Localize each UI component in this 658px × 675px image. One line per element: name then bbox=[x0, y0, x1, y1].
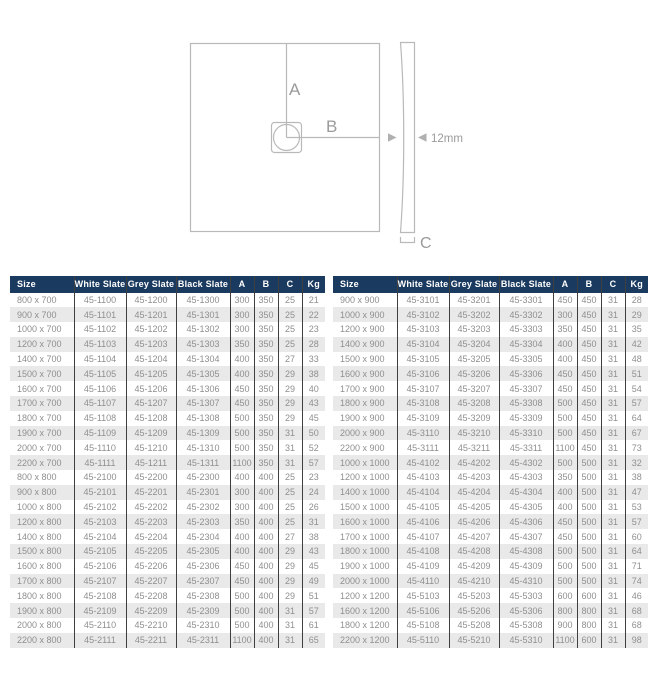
table-row: 1700 x 80045-210745-220745-2307450400294… bbox=[10, 574, 325, 589]
dim-c-cell: 25 bbox=[278, 485, 302, 500]
black-slate-code: 45-2309 bbox=[176, 603, 230, 618]
white-slate-code: 45-2100 bbox=[74, 470, 126, 485]
size-cell: 1600 x 700 bbox=[10, 381, 74, 396]
black-slate-code: 45-3302 bbox=[499, 307, 553, 322]
white-slate-code: 45-2104 bbox=[74, 529, 126, 544]
grey-slate-code: 45-2205 bbox=[126, 544, 176, 559]
column-header-black-slate: Black Slate bbox=[499, 276, 553, 293]
grey-slate-code: 45-5203 bbox=[449, 588, 499, 603]
dim-b-cell: 350 bbox=[254, 366, 278, 381]
black-slate-code: 45-4304 bbox=[499, 485, 553, 500]
dim-b-cell: 450 bbox=[577, 381, 601, 396]
dim-b-cell: 450 bbox=[577, 396, 601, 411]
dim-a-cell: 450 bbox=[230, 559, 254, 574]
dim-a-cell: 500 bbox=[230, 588, 254, 603]
size-cell: 2200 x 800 bbox=[10, 633, 74, 648]
table-row: 1900 x 90045-310945-320945-3309500450316… bbox=[333, 411, 648, 426]
black-slate-code: 45-1303 bbox=[176, 337, 230, 352]
grey-slate-code: 45-2203 bbox=[126, 514, 176, 529]
size-cell: 1200 x 700 bbox=[10, 337, 74, 352]
dim-c-cell: 31 bbox=[601, 307, 625, 322]
weight-kg-cell: 64 bbox=[625, 411, 648, 426]
black-slate-code: 45-3304 bbox=[499, 337, 553, 352]
size-cell: 1000 x 900 bbox=[333, 307, 397, 322]
dim-b-cell: 350 bbox=[254, 307, 278, 322]
dim-c-cell: 31 bbox=[601, 544, 625, 559]
black-slate-code: 45-3310 bbox=[499, 426, 553, 441]
spec-table-left: SizeWhite SlateGrey SlateBlack SlateABCK… bbox=[10, 276, 325, 648]
table-row: 1800 x 120045-510845-520845-530890080031… bbox=[333, 618, 648, 633]
column-header-b: B bbox=[254, 276, 278, 293]
table-row: 2000 x 100045-411045-421045-431050050031… bbox=[333, 574, 648, 589]
size-cell: 2200 x 700 bbox=[10, 455, 74, 470]
grey-slate-code: 45-3207 bbox=[449, 381, 499, 396]
white-slate-code: 45-5110 bbox=[397, 633, 449, 648]
size-cell: 2200 x 900 bbox=[333, 440, 397, 455]
grey-slate-code: 45-2208 bbox=[126, 588, 176, 603]
white-slate-code: 45-3102 bbox=[397, 307, 449, 322]
dim-b-cell: 450 bbox=[577, 337, 601, 352]
white-slate-code: 45-2109 bbox=[74, 603, 126, 618]
weight-kg-cell: 26 bbox=[302, 500, 325, 515]
dim-b-cell: 350 bbox=[254, 455, 278, 470]
dim-b-cell: 350 bbox=[254, 426, 278, 441]
dim-a-cell: 400 bbox=[553, 352, 577, 367]
dim-c-cell: 31 bbox=[601, 618, 625, 633]
dim-a-label: A bbox=[289, 80, 301, 99]
white-slate-code: 45-3105 bbox=[397, 352, 449, 367]
weight-kg-cell: 45 bbox=[302, 559, 325, 574]
dim-a-cell: 400 bbox=[230, 352, 254, 367]
weight-kg-cell: 51 bbox=[302, 588, 325, 603]
size-cell: 1500 x 900 bbox=[333, 352, 397, 367]
grey-slate-code: 45-2200 bbox=[126, 470, 176, 485]
size-cell: 2000 x 700 bbox=[10, 440, 74, 455]
dim-b-cell: 450 bbox=[577, 366, 601, 381]
table-row: 1600 x 70045-110645-120645-1306450350294… bbox=[10, 381, 325, 396]
grey-slate-code: 45-1200 bbox=[126, 293, 176, 308]
dim-a-cell: 400 bbox=[553, 337, 577, 352]
black-slate-code: 45-1305 bbox=[176, 366, 230, 381]
dim-b-cell: 400 bbox=[254, 514, 278, 529]
dim-a-cell: 500 bbox=[230, 440, 254, 455]
white-slate-code: 45-3108 bbox=[397, 396, 449, 411]
black-slate-code: 45-2305 bbox=[176, 544, 230, 559]
weight-kg-cell: 46 bbox=[625, 588, 648, 603]
weight-kg-cell: 68 bbox=[625, 618, 648, 633]
dim-c-cell: 31 bbox=[601, 352, 625, 367]
table-row: 2000 x 70045-111045-121045-1310500350315… bbox=[10, 440, 325, 455]
black-slate-code: 45-4310 bbox=[499, 574, 553, 589]
grey-slate-code: 45-2201 bbox=[126, 485, 176, 500]
header-row: SizeWhite SlateGrey SlateBlack SlateABCK… bbox=[333, 276, 648, 293]
grey-slate-code: 45-1207 bbox=[126, 396, 176, 411]
weight-kg-cell: 49 bbox=[302, 574, 325, 589]
grey-slate-code: 45-1208 bbox=[126, 411, 176, 426]
dim-c-cell: 31 bbox=[601, 529, 625, 544]
size-cell: 2200 x 1200 bbox=[333, 633, 397, 648]
dim-a-cell: 500 bbox=[230, 411, 254, 426]
column-header-kg: Kg bbox=[625, 276, 648, 293]
size-cell: 1900 x 900 bbox=[333, 411, 397, 426]
grey-slate-code: 45-2210 bbox=[126, 618, 176, 633]
white-slate-code: 45-3109 bbox=[397, 411, 449, 426]
weight-kg-cell: 57 bbox=[302, 603, 325, 618]
weight-kg-cell: 24 bbox=[302, 485, 325, 500]
white-slate-code: 45-1103 bbox=[74, 337, 126, 352]
weight-kg-cell: 32 bbox=[625, 455, 648, 470]
grey-slate-code: 45-4204 bbox=[449, 485, 499, 500]
dim-b-cell: 400 bbox=[254, 618, 278, 633]
black-slate-code: 45-1300 bbox=[176, 293, 230, 308]
size-cell: 1000 x 800 bbox=[10, 500, 74, 515]
dim-b-cell: 500 bbox=[577, 559, 601, 574]
column-header-grey-slate: Grey Slate bbox=[126, 276, 176, 293]
size-cell: 1600 x 1200 bbox=[333, 603, 397, 618]
dim-b-cell: 350 bbox=[254, 440, 278, 455]
white-slate-code: 45-4103 bbox=[397, 470, 449, 485]
table-row: 1400 x 90045-310445-320445-3304400450314… bbox=[333, 337, 648, 352]
table-row: 1500 x 80045-210545-220545-2305400400294… bbox=[10, 544, 325, 559]
grey-slate-code: 45-2209 bbox=[126, 603, 176, 618]
dim-c-cell: 31 bbox=[601, 293, 625, 308]
dim-a-cell: 450 bbox=[230, 396, 254, 411]
dim-a-cell: 350 bbox=[230, 337, 254, 352]
dim-b-cell: 350 bbox=[254, 337, 278, 352]
grey-slate-code: 45-3206 bbox=[449, 366, 499, 381]
dim-c-cell: 31 bbox=[601, 381, 625, 396]
size-cell: 1700 x 800 bbox=[10, 574, 74, 589]
black-slate-code: 45-5310 bbox=[499, 633, 553, 648]
grey-slate-code: 45-2202 bbox=[126, 500, 176, 515]
size-cell: 2000 x 1000 bbox=[333, 574, 397, 589]
size-cell: 1500 x 1000 bbox=[333, 500, 397, 515]
weight-kg-cell: 38 bbox=[625, 470, 648, 485]
table-row: 1600 x 90045-310645-320645-3306450450315… bbox=[333, 366, 648, 381]
white-slate-code: 45-1107 bbox=[74, 396, 126, 411]
dim-b-cell: 600 bbox=[577, 633, 601, 648]
dim-b-cell: 500 bbox=[577, 500, 601, 515]
black-slate-code: 45-4307 bbox=[499, 529, 553, 544]
grey-slate-code: 45-2207 bbox=[126, 574, 176, 589]
black-slate-code: 45-3311 bbox=[499, 440, 553, 455]
white-slate-code: 45-4110 bbox=[397, 574, 449, 589]
weight-kg-cell: 31 bbox=[302, 514, 325, 529]
weight-kg-cell: 74 bbox=[625, 574, 648, 589]
black-slate-code: 45-4303 bbox=[499, 470, 553, 485]
table-row: 1800 x 80045-210845-220845-2308500400295… bbox=[10, 588, 325, 603]
size-cell: 1400 x 700 bbox=[10, 352, 74, 367]
grey-slate-code: 45-3208 bbox=[449, 396, 499, 411]
dim-a-cell: 500 bbox=[553, 574, 577, 589]
dim-c-cell: 31 bbox=[601, 440, 625, 455]
white-slate-code: 45-4108 bbox=[397, 544, 449, 559]
size-cell: 1200 x 1000 bbox=[333, 470, 397, 485]
black-slate-code: 45-2306 bbox=[176, 559, 230, 574]
black-slate-code: 45-2303 bbox=[176, 514, 230, 529]
dim-b-cell: 400 bbox=[254, 500, 278, 515]
table-row: 1500 x 70045-110545-120545-1305400350293… bbox=[10, 366, 325, 381]
dim-c-cell: 27 bbox=[278, 352, 302, 367]
dim-a-cell: 400 bbox=[230, 529, 254, 544]
table-row: 1800 x 70045-110845-120845-1308500350294… bbox=[10, 411, 325, 426]
weight-kg-cell: 33 bbox=[302, 352, 325, 367]
grey-slate-code: 45-4207 bbox=[449, 529, 499, 544]
dim-a-cell: 450 bbox=[553, 366, 577, 381]
size-cell: 1200 x 900 bbox=[333, 322, 397, 337]
dim-a-cell: 400 bbox=[230, 470, 254, 485]
dim-b-cell: 350 bbox=[254, 322, 278, 337]
white-slate-code: 45-1101 bbox=[74, 307, 126, 322]
tray-side-profile bbox=[401, 43, 415, 233]
column-header-kg: Kg bbox=[302, 276, 325, 293]
dim-b-cell: 400 bbox=[254, 588, 278, 603]
white-slate-code: 45-1111 bbox=[74, 455, 126, 470]
dim-a-cell: 500 bbox=[553, 544, 577, 559]
grey-slate-code: 45-2204 bbox=[126, 529, 176, 544]
dim-a-cell: 500 bbox=[553, 559, 577, 574]
dim-b-cell: 450 bbox=[577, 352, 601, 367]
black-slate-code: 45-1301 bbox=[176, 307, 230, 322]
dim-a-cell: 500 bbox=[553, 411, 577, 426]
dim-a-cell: 350 bbox=[553, 322, 577, 337]
table-row: 1800 x 90045-310845-320845-3308500450315… bbox=[333, 396, 648, 411]
dim-c-cell: 29 bbox=[278, 366, 302, 381]
table-row: 2200 x 90045-311145-321145-3311110045031… bbox=[333, 440, 648, 455]
table-row: 1700 x 70045-110745-120745-1307450350294… bbox=[10, 396, 325, 411]
size-cell: 1700 x 1000 bbox=[333, 529, 397, 544]
dim-b-cell: 600 bbox=[577, 588, 601, 603]
dim-a-cell: 450 bbox=[230, 381, 254, 396]
white-slate-code: 45-3110 bbox=[397, 426, 449, 441]
dim-a-cell: 1100 bbox=[230, 455, 254, 470]
dim-b-cell: 450 bbox=[577, 411, 601, 426]
white-slate-code: 45-4107 bbox=[397, 529, 449, 544]
weight-kg-cell: 47 bbox=[625, 485, 648, 500]
dim-a-cell: 1100 bbox=[553, 440, 577, 455]
black-slate-code: 45-4309 bbox=[499, 559, 553, 574]
white-slate-code: 45-5103 bbox=[397, 588, 449, 603]
black-slate-code: 45-2307 bbox=[176, 574, 230, 589]
size-cell: 800 x 700 bbox=[10, 293, 74, 308]
weight-kg-cell: 65 bbox=[302, 633, 325, 648]
white-slate-code: 45-3106 bbox=[397, 366, 449, 381]
table-row: 900 x 90045-310145-320145-33014504503128 bbox=[333, 293, 648, 308]
dim-c-cell: 31 bbox=[601, 396, 625, 411]
column-header-white-slate: White Slate bbox=[74, 276, 126, 293]
weight-kg-cell: 73 bbox=[625, 440, 648, 455]
black-slate-code: 45-4308 bbox=[499, 544, 553, 559]
weight-kg-cell: 53 bbox=[625, 500, 648, 515]
dim-c-cell: 31 bbox=[601, 500, 625, 515]
grey-slate-code: 45-1206 bbox=[126, 381, 176, 396]
size-cell: 1400 x 900 bbox=[333, 337, 397, 352]
dim-a-cell: 300 bbox=[230, 307, 254, 322]
size-cell: 1900 x 700 bbox=[10, 426, 74, 441]
weight-kg-cell: 45 bbox=[302, 411, 325, 426]
weight-kg-cell: 23 bbox=[302, 470, 325, 485]
black-slate-code: 45-3309 bbox=[499, 411, 553, 426]
weight-kg-cell: 71 bbox=[625, 559, 648, 574]
dim-a-cell: 350 bbox=[230, 514, 254, 529]
dim-a-cell: 600 bbox=[553, 588, 577, 603]
black-slate-code: 45-3307 bbox=[499, 381, 553, 396]
dim-c-cell: 31 bbox=[601, 588, 625, 603]
white-slate-code: 45-5108 bbox=[397, 618, 449, 633]
dim-a-cell: 300 bbox=[230, 485, 254, 500]
weight-kg-cell: 57 bbox=[625, 396, 648, 411]
table-row: 1900 x 70045-110945-120945-1309500350315… bbox=[10, 426, 325, 441]
black-slate-code: 45-5308 bbox=[499, 618, 553, 633]
tray-dimension-diagram: A B 12mm C bbox=[0, 0, 658, 270]
white-slate-code: 45-4109 bbox=[397, 559, 449, 574]
dim-a-cell: 500 bbox=[230, 426, 254, 441]
table-row: 2200 x 70045-111145-121145-1311110035031… bbox=[10, 455, 325, 470]
table-row: 1200 x 100045-410345-420345-430335050031… bbox=[333, 470, 648, 485]
dim-c-cell: 29 bbox=[278, 381, 302, 396]
weight-kg-cell: 38 bbox=[302, 529, 325, 544]
dim-b-cell: 400 bbox=[254, 485, 278, 500]
dim-b-label: B bbox=[326, 117, 337, 136]
dim-a-cell: 1100 bbox=[553, 633, 577, 648]
weight-kg-cell: 52 bbox=[302, 440, 325, 455]
dim-c-cell: 31 bbox=[601, 603, 625, 618]
dim-c-cell: 31 bbox=[601, 366, 625, 381]
size-cell: 1000 x 1000 bbox=[333, 455, 397, 470]
black-slate-code: 45-5303 bbox=[499, 588, 553, 603]
dim-c-cell: 25 bbox=[278, 337, 302, 352]
black-slate-code: 45-3305 bbox=[499, 352, 553, 367]
dim-c-cell: 29 bbox=[278, 411, 302, 426]
dim-c-cell: 31 bbox=[601, 514, 625, 529]
black-slate-code: 45-2308 bbox=[176, 588, 230, 603]
grey-slate-code: 45-5210 bbox=[449, 633, 499, 648]
white-slate-code: 45-2103 bbox=[74, 514, 126, 529]
dim-b-cell: 350 bbox=[254, 396, 278, 411]
dim-b-cell: 800 bbox=[577, 603, 601, 618]
black-slate-code: 45-3306 bbox=[499, 366, 553, 381]
dim-c-cell: 29 bbox=[278, 559, 302, 574]
arrow-right-icon bbox=[388, 133, 397, 142]
black-slate-code: 45-2311 bbox=[176, 633, 230, 648]
dim-b-cell: 400 bbox=[254, 529, 278, 544]
black-slate-code: 45-1306 bbox=[176, 381, 230, 396]
weight-kg-cell: 42 bbox=[625, 337, 648, 352]
dim-b-cell: 450 bbox=[577, 322, 601, 337]
column-header-c: C bbox=[278, 276, 302, 293]
black-slate-code: 45-4302 bbox=[499, 455, 553, 470]
dim-a-cell: 300 bbox=[230, 500, 254, 515]
grey-slate-code: 45-3202 bbox=[449, 307, 499, 322]
column-header-size: Size bbox=[333, 276, 397, 293]
column-header-a: A bbox=[230, 276, 254, 293]
weight-kg-cell: 38 bbox=[302, 366, 325, 381]
size-cell: 1800 x 1200 bbox=[333, 618, 397, 633]
dim-a-cell: 450 bbox=[553, 293, 577, 308]
table-row: 2200 x 80045-211145-221145-2311110040031… bbox=[10, 633, 325, 648]
size-cell: 1700 x 700 bbox=[10, 396, 74, 411]
white-slate-code: 45-4105 bbox=[397, 500, 449, 515]
white-slate-code: 45-1108 bbox=[74, 411, 126, 426]
size-cell: 1000 x 700 bbox=[10, 322, 74, 337]
column-header-black-slate: Black Slate bbox=[176, 276, 230, 293]
dim-c-cell: 29 bbox=[278, 544, 302, 559]
black-slate-code: 45-2302 bbox=[176, 500, 230, 515]
white-slate-code: 45-2111 bbox=[74, 633, 126, 648]
grey-slate-code: 45-2206 bbox=[126, 559, 176, 574]
table-row: 1600 x 100045-410645-420645-430645050031… bbox=[333, 514, 648, 529]
dim-a-cell: 300 bbox=[553, 307, 577, 322]
dim-b-cell: 350 bbox=[254, 381, 278, 396]
weight-kg-cell: 43 bbox=[302, 544, 325, 559]
white-slate-code: 45-1106 bbox=[74, 381, 126, 396]
dim-c-cell: 25 bbox=[278, 293, 302, 308]
dim-c-cell: 29 bbox=[278, 588, 302, 603]
dim-b-cell: 400 bbox=[254, 603, 278, 618]
white-slate-code: 45-4106 bbox=[397, 514, 449, 529]
table-row: 1000 x 90045-310245-320245-3302300450312… bbox=[333, 307, 648, 322]
weight-kg-cell: 35 bbox=[625, 322, 648, 337]
dim-b-cell: 400 bbox=[254, 544, 278, 559]
dim-a-cell: 800 bbox=[553, 603, 577, 618]
white-slate-code: 45-1109 bbox=[74, 426, 126, 441]
weight-kg-cell: 57 bbox=[625, 514, 648, 529]
spec-tables: SizeWhite SlateGrey SlateBlack SlateABCK… bbox=[10, 276, 648, 648]
size-cell: 1200 x 800 bbox=[10, 514, 74, 529]
dim-c-cell: 29 bbox=[278, 396, 302, 411]
dim-b-cell: 350 bbox=[254, 352, 278, 367]
header-row: SizeWhite SlateGrey SlateBlack SlateABCK… bbox=[10, 276, 325, 293]
dim-c-cell: 31 bbox=[601, 559, 625, 574]
table-row: 1000 x 100045-410245-420245-430250050031… bbox=[333, 455, 648, 470]
dim-c-cell: 31 bbox=[601, 633, 625, 648]
grey-slate-code: 45-4208 bbox=[449, 544, 499, 559]
white-slate-code: 45-3101 bbox=[397, 293, 449, 308]
white-slate-code: 45-1100 bbox=[74, 293, 126, 308]
white-slate-code: 45-2106 bbox=[74, 559, 126, 574]
white-slate-code: 45-1105 bbox=[74, 366, 126, 381]
dim-c-cell: 31 bbox=[278, 440, 302, 455]
dim-b-cell: 500 bbox=[577, 574, 601, 589]
dim-c-label: C bbox=[420, 235, 432, 252]
size-cell: 900 x 800 bbox=[10, 485, 74, 500]
table-row: 1700 x 100045-410745-420745-430745050031… bbox=[333, 529, 648, 544]
white-slate-code: 45-4104 bbox=[397, 485, 449, 500]
dim-c-cell: 31 bbox=[601, 470, 625, 485]
black-slate-code: 45-1302 bbox=[176, 322, 230, 337]
weight-kg-cell: 21 bbox=[302, 293, 325, 308]
grey-slate-code: 45-4210 bbox=[449, 574, 499, 589]
size-cell: 1800 x 1000 bbox=[333, 544, 397, 559]
grey-slate-code: 45-4203 bbox=[449, 470, 499, 485]
weight-kg-cell: 48 bbox=[625, 352, 648, 367]
dim-c-cell: 25 bbox=[278, 470, 302, 485]
dim-a-cell: 350 bbox=[553, 470, 577, 485]
weight-kg-cell: 67 bbox=[625, 426, 648, 441]
dim-a-cell: 400 bbox=[553, 485, 577, 500]
white-slate-code: 45-3104 bbox=[397, 337, 449, 352]
arrow-left-icon bbox=[418, 133, 427, 142]
dim-b-cell: 350 bbox=[254, 411, 278, 426]
dim-b-cell: 400 bbox=[254, 633, 278, 648]
dim-b-cell: 400 bbox=[254, 559, 278, 574]
black-slate-code: 45-2300 bbox=[176, 470, 230, 485]
weight-kg-cell: 64 bbox=[625, 544, 648, 559]
table-row: 1000 x 80045-210245-220245-2302300400252… bbox=[10, 500, 325, 515]
table-row: 2000 x 90045-311045-321045-3310500450316… bbox=[333, 426, 648, 441]
dim-c-cell: 31 bbox=[278, 603, 302, 618]
white-slate-code: 45-2105 bbox=[74, 544, 126, 559]
